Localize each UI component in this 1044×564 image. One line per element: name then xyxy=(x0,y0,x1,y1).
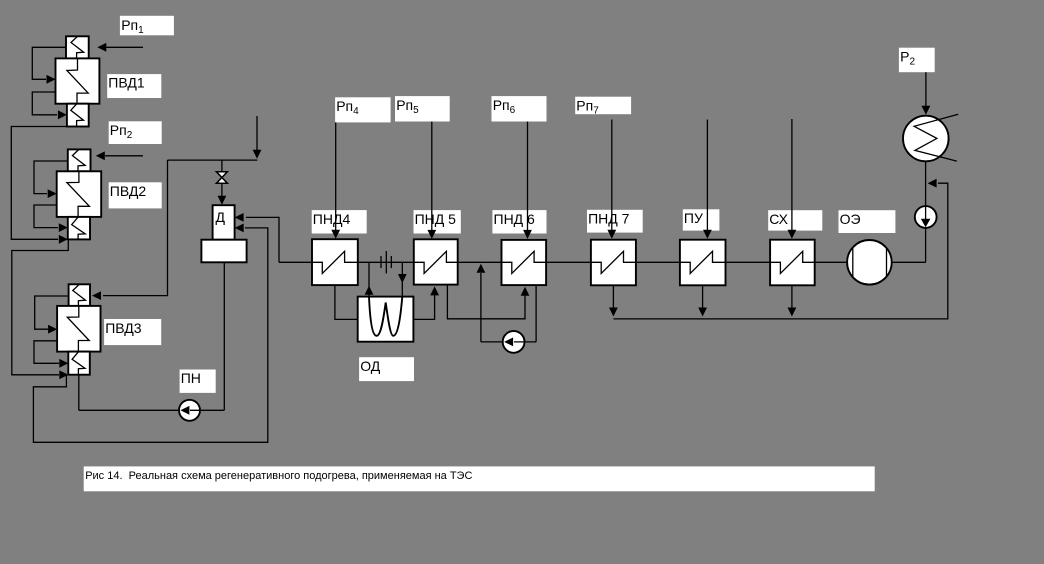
svg-text:ПВД3: ПВД3 xyxy=(105,320,142,336)
svg-text:ПНД 6: ПНД 6 xyxy=(494,211,536,227)
svg-text:ОЭ: ОЭ xyxy=(840,211,861,227)
svg-text:СХ: СХ xyxy=(769,211,788,227)
svg-text:ПУ: ПУ xyxy=(684,210,703,226)
svg-text:ПНД 5: ПНД 5 xyxy=(415,211,457,227)
svg-text:Рис 14. Реальная схема регене: Рис 14. Реальная схема регенеративного п… xyxy=(85,470,472,482)
svg-text:ПН: ПН xyxy=(181,370,201,386)
svg-text:ПНД4: ПНД4 xyxy=(313,211,351,227)
svg-text:ПВД2: ПВД2 xyxy=(110,183,147,199)
svg-text:ОД: ОД xyxy=(360,358,381,374)
svg-text:ПНД 7: ПНД 7 xyxy=(588,211,630,227)
svg-text:ПВД1: ПВД1 xyxy=(108,75,145,91)
svg-text:Д: Д xyxy=(216,209,226,225)
